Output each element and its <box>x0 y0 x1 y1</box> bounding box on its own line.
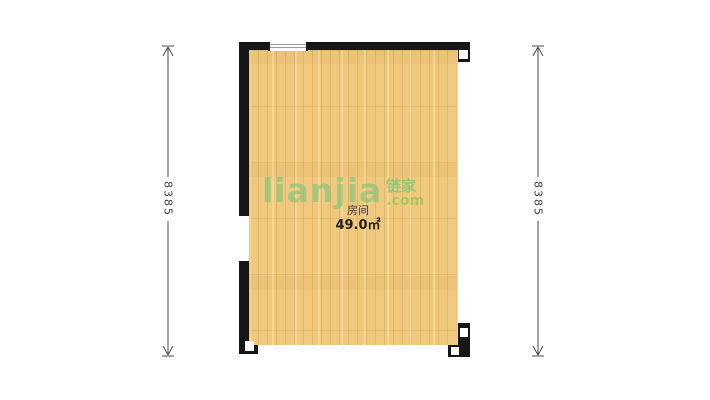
floorplan-canvas: 8385 8385 lianjia 链家 .com 房间 49.0㎡ <box>0 0 710 400</box>
room-name-label: 房间 <box>335 204 380 218</box>
wall-left-lower <box>239 261 249 337</box>
wall-left-upper <box>239 42 249 216</box>
wall-end-cap-bottom-left <box>245 341 254 351</box>
wall-end-cap-bottom-right-1 <box>460 328 468 337</box>
dimension-label-left: 8385 <box>161 177 176 221</box>
room-floor <box>249 50 458 345</box>
wall-end-cap-top-right <box>459 50 468 59</box>
dimension-label-right: 8385 <box>531 177 546 221</box>
room-area-label: 49.0㎡ <box>335 218 380 233</box>
room-label-block: 房间 49.0㎡ <box>335 204 380 233</box>
wall-end-cap-bottom-right-2 <box>451 347 459 355</box>
window-icon <box>268 42 308 51</box>
